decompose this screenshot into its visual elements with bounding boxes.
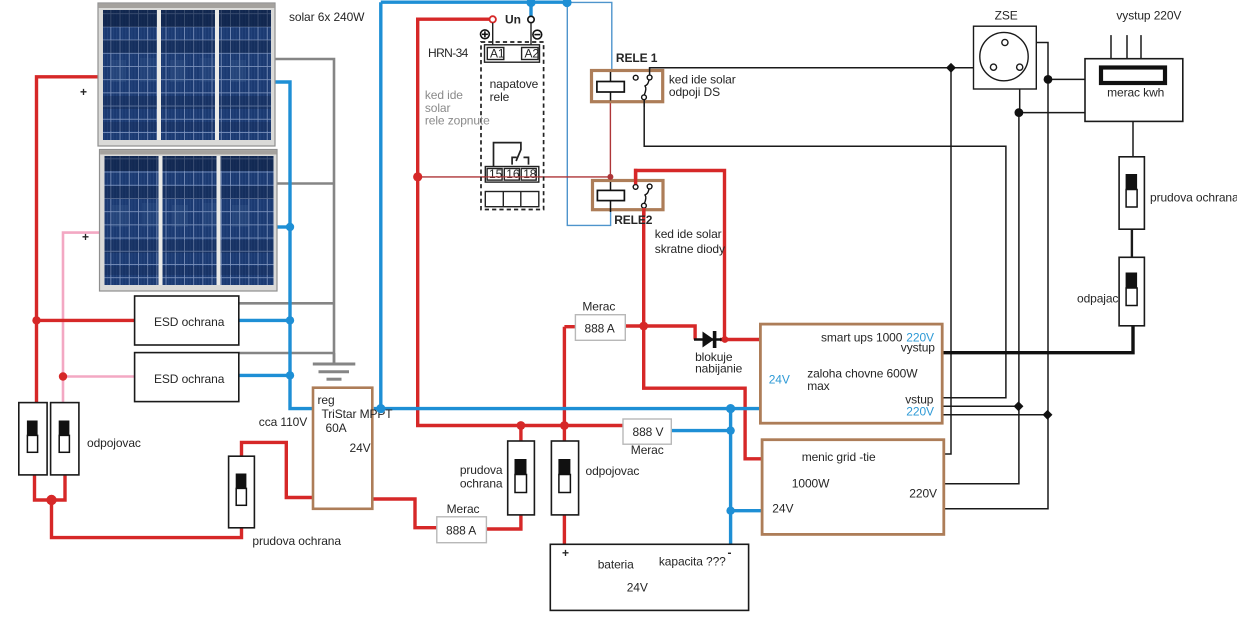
svg-text:18: 18 — [523, 167, 537, 181]
svg-text:60A: 60A — [326, 421, 347, 435]
svg-text:Un: Un — [505, 13, 521, 27]
svg-text:ked ide: ked ide — [425, 88, 463, 102]
svg-text:ESD ochrana: ESD ochrana — [154, 372, 225, 386]
svg-text:kapacita ???: kapacita ??? — [659, 555, 726, 569]
svg-text:16: 16 — [506, 167, 520, 181]
svg-text:888 A: 888 A — [585, 322, 615, 336]
svg-text:odpojovac: odpojovac — [87, 436, 141, 450]
svg-text:menic grid -tie: menic grid -tie — [802, 450, 876, 464]
svg-text:A1: A1 — [490, 46, 505, 60]
svg-text:odpoji DS: odpoji DS — [669, 85, 720, 99]
svg-text:Merac: Merac — [631, 443, 664, 457]
svg-text:220V: 220V — [909, 487, 937, 501]
svg-text:-: - — [728, 546, 732, 560]
svg-text:prudova ochrana: prudova ochrana — [252, 534, 341, 548]
svg-text:ZSE: ZSE — [995, 9, 1018, 23]
svg-text:+: + — [562, 546, 569, 560]
svg-text:nabijanie: nabijanie — [695, 362, 743, 376]
svg-text:napatove: napatove — [490, 77, 539, 91]
svg-text:A2: A2 — [525, 46, 540, 60]
svg-text:ked ide solar: ked ide solar — [655, 227, 722, 241]
svg-text:vystup: vystup — [901, 341, 936, 355]
svg-text:220V: 220V — [906, 405, 934, 419]
svg-text:RELE 1: RELE 1 — [616, 51, 658, 65]
svg-text:24V: 24V — [627, 581, 648, 595]
svg-text:+: + — [82, 230, 89, 244]
svg-text:+: + — [80, 85, 87, 99]
svg-text:reg: reg — [318, 393, 335, 407]
svg-text:odpajac: odpajac — [1077, 292, 1118, 306]
svg-text:1000W: 1000W — [792, 477, 830, 491]
svg-text:vystup 220V: vystup 220V — [1116, 9, 1181, 23]
svg-text:Merac: Merac — [582, 300, 615, 314]
svg-text:max: max — [807, 379, 829, 393]
svg-text:888 A: 888 A — [446, 524, 476, 538]
svg-text:solar 6x 240W: solar 6x 240W — [289, 10, 365, 24]
svg-text:ochrana: ochrana — [460, 477, 503, 491]
svg-text:24V: 24V — [772, 502, 793, 516]
svg-text:cca 110V: cca 110V — [259, 415, 307, 429]
svg-text:smart ups 1000: smart ups 1000 — [821, 331, 903, 345]
svg-text:skratne diody: skratne diody — [655, 242, 725, 256]
svg-text:HRN-34: HRN-34 — [428, 46, 469, 60]
svg-text:bateria: bateria — [598, 558, 634, 572]
svg-text:rele zopnute: rele zopnute — [425, 114, 490, 128]
svg-text:odpojovac: odpojovac — [586, 464, 640, 478]
svg-text:888 V: 888 V — [633, 425, 664, 439]
svg-text:RELE2: RELE2 — [614, 213, 653, 227]
svg-text:prudova ochrana: prudova ochrana — [1150, 191, 1237, 205]
svg-text:15: 15 — [489, 167, 503, 181]
svg-text:merac kwh: merac kwh — [1107, 86, 1164, 100]
svg-text:24V: 24V — [769, 373, 790, 387]
svg-text:24V: 24V — [350, 441, 371, 455]
svg-text:Merac: Merac — [447, 502, 480, 516]
svg-text:prudova: prudova — [460, 463, 503, 477]
svg-text:rele: rele — [490, 90, 510, 104]
svg-text:ESD ochrana: ESD ochrana — [154, 315, 225, 329]
